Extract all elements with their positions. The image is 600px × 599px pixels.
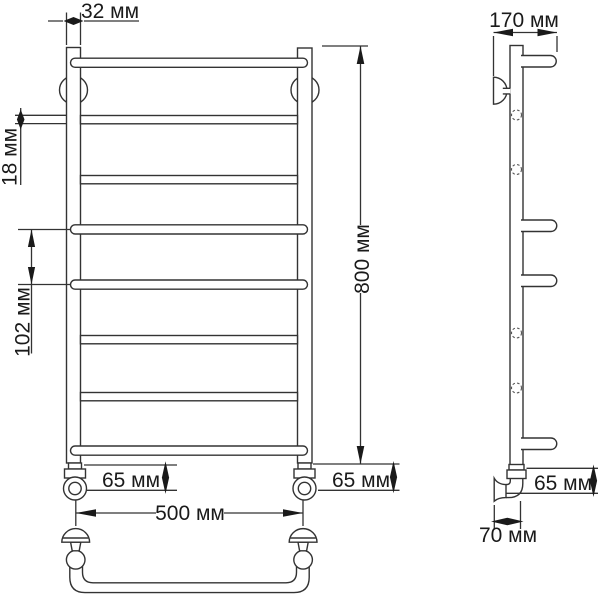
rung-row4 [71, 225, 308, 234]
dimension-rung-diameter: 18 мм [0, 108, 67, 186]
front-left-rail [67, 48, 81, 464]
side-collar [509, 465, 524, 471]
dimension-wall-offset: 70 мм [479, 501, 537, 547]
rung-row3 [81, 176, 298, 184]
dimension-height: 800 мм [313, 46, 400, 464]
valve-left-collar [69, 463, 82, 469]
side-top-bar [521, 56, 556, 68]
side-wall-bracket [494, 77, 511, 104]
side-rung8 [521, 438, 557, 450]
arrow-102-up [28, 230, 35, 248]
bottom-tube-inner [83, 566, 297, 583]
rung-row7 [81, 393, 298, 401]
side-elbow-inner [506, 479, 510, 485]
valve-left-ring [64, 477, 87, 500]
rung-row1-top-bar [71, 58, 308, 67]
valve-right-collar [298, 463, 311, 469]
dimension-rung-spacing: 102 мм [12, 230, 71, 357]
side-view [494, 46, 557, 502]
side-nut [507, 470, 526, 479]
bottom-ball-right [294, 551, 313, 570]
dim-label-side-offset: 65 мм [534, 472, 592, 495]
dimension-offset-right: 65 мм [318, 461, 400, 493]
valve-left [64, 463, 87, 500]
dim-label-depth: 170 мм [489, 9, 559, 32]
bottom-neck-left [71, 542, 81, 551]
dim-label-width: 500 мм [155, 502, 225, 525]
rung-row6 [81, 336, 298, 344]
side-wall-flange [494, 478, 506, 501]
dim-label-rung-diameter: 18 мм [0, 128, 22, 186]
dim-label-offset-right: 65 мм [332, 469, 390, 492]
dimension-offset-left: 65 мм [84, 461, 177, 494]
rung-row2 [81, 116, 298, 124]
ext-lines-170 [494, 33, 558, 77]
towel-rail-dimension-drawing: 32 мм 18 мм 102 мм 800 мм 65 мм [0, 0, 600, 599]
arrow-18 [17, 110, 25, 130]
valve-right-ring [293, 477, 316, 500]
arrow-65-left [162, 461, 169, 494]
dimension-width: 500 мм [76, 500, 303, 526]
side-elbow-outer [506, 479, 523, 498]
bottom-tube-outer [70, 566, 309, 593]
bottom-dome-right [289, 529, 317, 543]
side-rung4 [521, 220, 557, 232]
dim-label-wall-offset: 70 мм [479, 524, 537, 547]
front-right-rail [298, 48, 313, 463]
arrow-800-up [357, 46, 365, 64]
bottom-ball-left [66, 551, 85, 570]
bottom-view [62, 529, 317, 593]
rung-row5 [71, 280, 308, 289]
arrow-500-left [76, 509, 96, 516]
bottom-neck-right [298, 542, 308, 551]
arrow-500-right [283, 509, 303, 516]
technical-drawing-canvas: 32 мм 18 мм 102 мм 800 мм 65 мм [0, 0, 600, 599]
dim-label-height: 800 мм [351, 224, 374, 294]
arrow-102-down [28, 267, 35, 285]
dimension-rail-diameter: 32 мм [48, 0, 139, 45]
bottom-dome-left [62, 529, 90, 543]
side-rail-tube [510, 46, 523, 466]
dim-label-offset-left: 65 мм [102, 469, 160, 492]
valve-right [293, 463, 316, 500]
side-rung5 [521, 275, 557, 287]
side-bracket-neck-mask [503, 89, 511, 94]
rung-row8-bottom-bar [71, 446, 308, 455]
dim-label-rung-spacing: 102 мм [12, 287, 35, 357]
arrow-65-right [390, 461, 397, 493]
arrow-800-down [357, 446, 365, 464]
dim-label-rail-diameter: 32 мм [81, 0, 139, 23]
side-bottom-connection [494, 465, 526, 502]
front-view [60, 48, 320, 501]
